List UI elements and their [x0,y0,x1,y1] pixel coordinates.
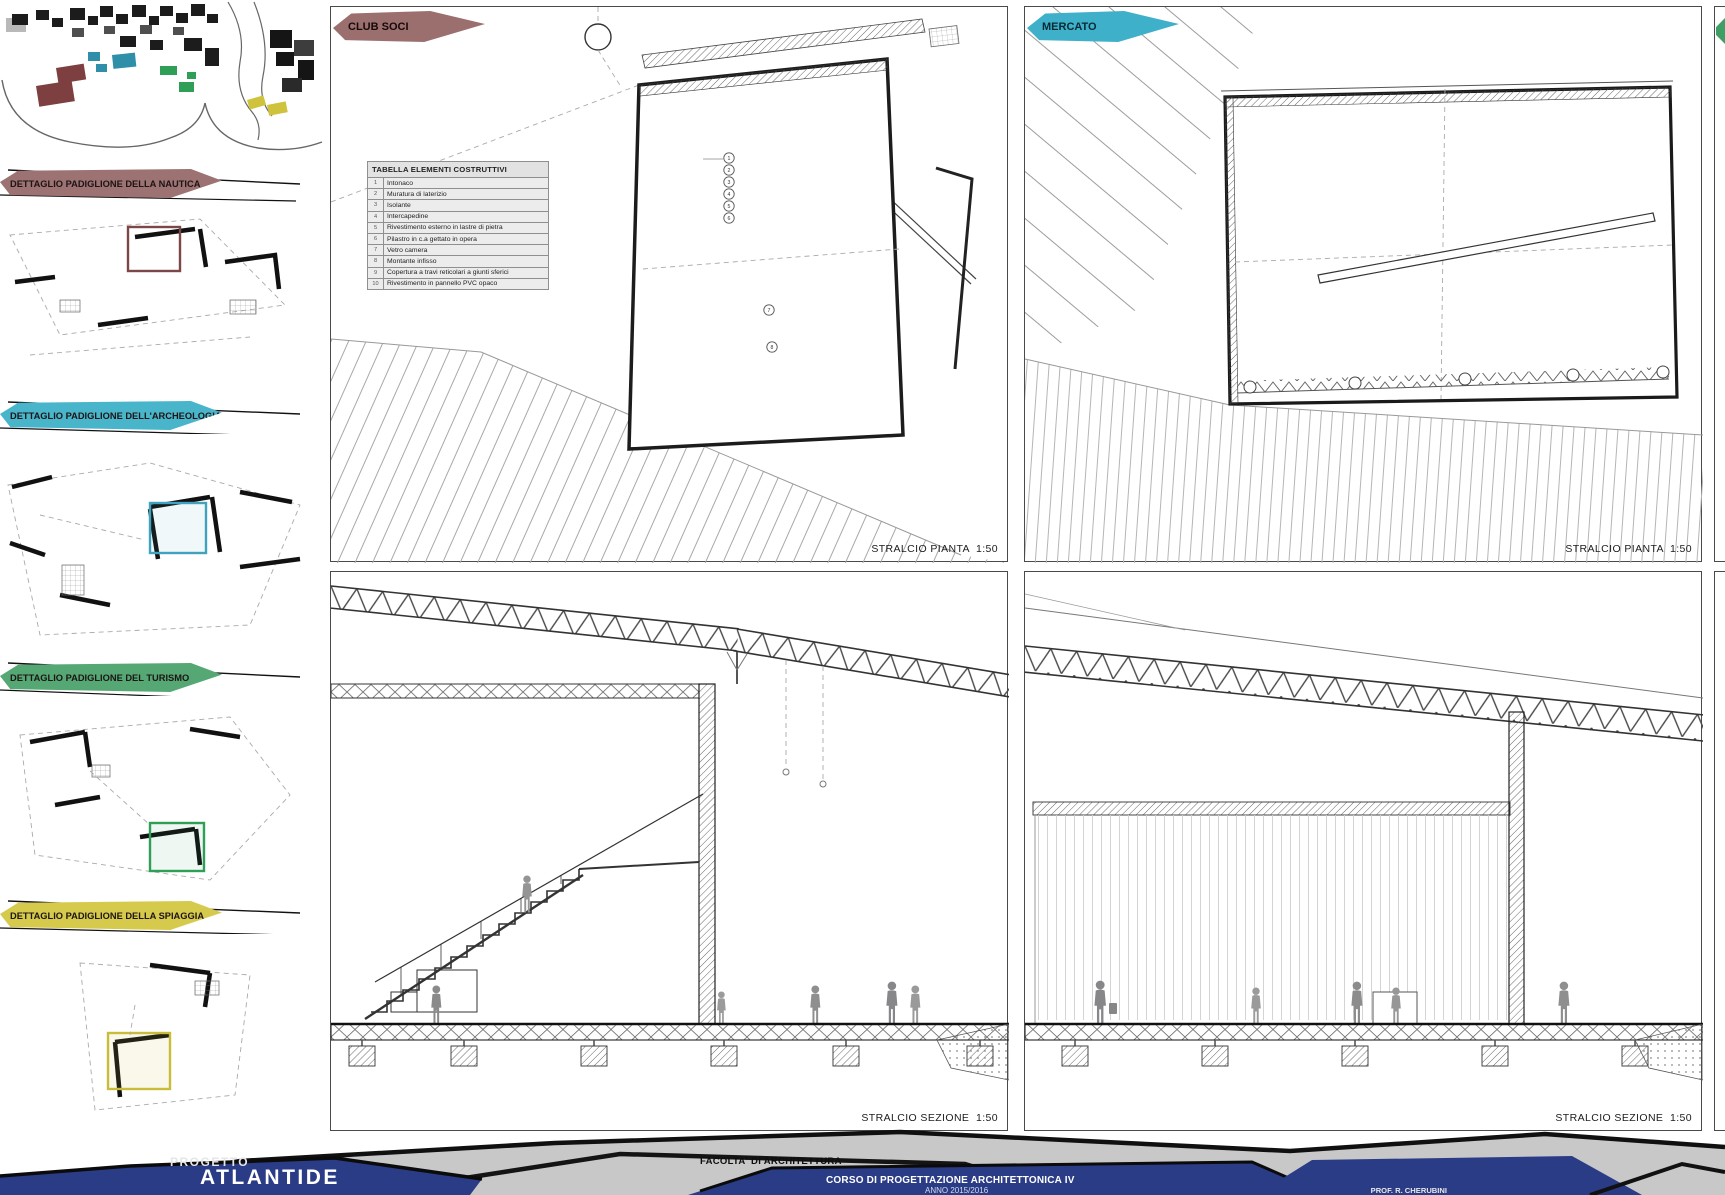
plan-caption: STRALCIO PIANTA 1:50 [871,543,998,555]
roof-truss [1025,646,1703,743]
banner-nautica: DETTAGLIO PADIGLIONE DELLA NAUTICA [0,166,305,202]
floor-deck [1025,1024,1703,1080]
pavilion-turismo-blocks [160,66,196,92]
mercato-plan-drawing [1025,7,1703,563]
panel-sliver-top [1714,6,1725,562]
floor-deck [331,1024,1009,1080]
column-circle [585,24,611,50]
panel-sliver-bottom [1714,571,1725,1131]
project-name: ATLANTIDE [200,1166,340,1190]
professor-name: PROF. R. CHERUBINI [1145,1186,1447,1195]
panel-club-soci-section: STRALCIO SEZIONE 1:50 [330,571,1008,1131]
pavilion-nautica-blocks [36,64,86,107]
mini-plan-spiaggia [0,945,310,1127]
banner-archeologia: DETTAGLIO PADIGLIONE DELL'ARCHEOLOGIA [0,398,305,434]
staircase [365,794,703,1019]
right-building-cluster [270,30,314,92]
highlight-spiaggia [108,1033,170,1089]
mini-plan-turismo [0,705,310,890]
table-title: TABELLA ELEMENTI COSTRUTTIVI [368,162,549,178]
ceiling-deck [331,684,699,698]
banner-turismo: DETTAGLIO PADIGLIONE DEL TURISMO [0,660,305,696]
curtain-lines [1037,815,1507,1020]
svg-text:5: 5 [728,204,731,210]
svg-text:6: 6 [728,216,731,222]
mercato-section-drawing [1025,572,1703,1132]
banner-spiaggia: DETTAGLIO PADIGLIONE DELLA SPIAGGIA [0,898,305,934]
section-wall [1509,712,1524,1024]
panel-mercato-plan: MERCATO STRALCIO PIANTA 1:50 [1024,6,1702,562]
highlight-turismo [150,823,204,871]
svg-text:4: 4 [728,192,731,198]
svg-text:3: 3 [728,180,731,186]
roof-truss [331,586,1009,697]
club-soci-section-drawing [331,572,1009,1132]
section-caption: STRALCIO SEZIONE 1:50 [1555,1112,1692,1124]
building-outline [1225,87,1677,404]
credits-block: PROF. R. CHERUBINI STUDENTI: MEONI ELENA… [1145,1167,1447,1195]
people-silhouettes [431,876,920,1025]
pavilion-archeologia-blocks [88,52,136,72]
mini-plan-nautica [0,205,310,395]
svg-text:1: 1 [728,156,731,162]
ceiling-slab [1033,802,1510,815]
svg-text:7: 7 [768,308,771,314]
site-plan-axonometric [0,0,330,165]
construction-elements-table: TABELLA ELEMENTI COSTRUTTIVI 1Intonaco 2… [367,161,549,290]
faculty-title: FACOLTA' DI ARCHITETTURA [700,1156,842,1167]
mini-plan-archeologia [0,445,310,650]
svg-text:2: 2 [728,168,731,174]
panel-mercato-section: STRALCIO SEZIONE 1:50 [1024,571,1702,1131]
academic-year: ANNO 2015/2016 [925,1186,988,1195]
section-wall [699,684,715,1024]
section-caption: STRALCIO SEZIONE 1:50 [861,1112,998,1124]
plan-caption: STRALCIO PIANTA 1:50 [1565,543,1692,555]
panel-club-soci-plan: CLUB SOCI 1 2 3 4 5 6 7 8 TABELLA ELEMEN… [330,6,1008,562]
course-title: CORSO DI PROGETTAZIONE ARCHITETTONICA IV [826,1175,1075,1186]
highlight-archeologia [150,503,206,553]
building-outline [629,59,903,449]
svg-text:8: 8 [771,345,774,351]
presentation-board: DETTAGLIO PADIGLIONE DELLA NAUTICA DETTA… [0,0,1725,1195]
